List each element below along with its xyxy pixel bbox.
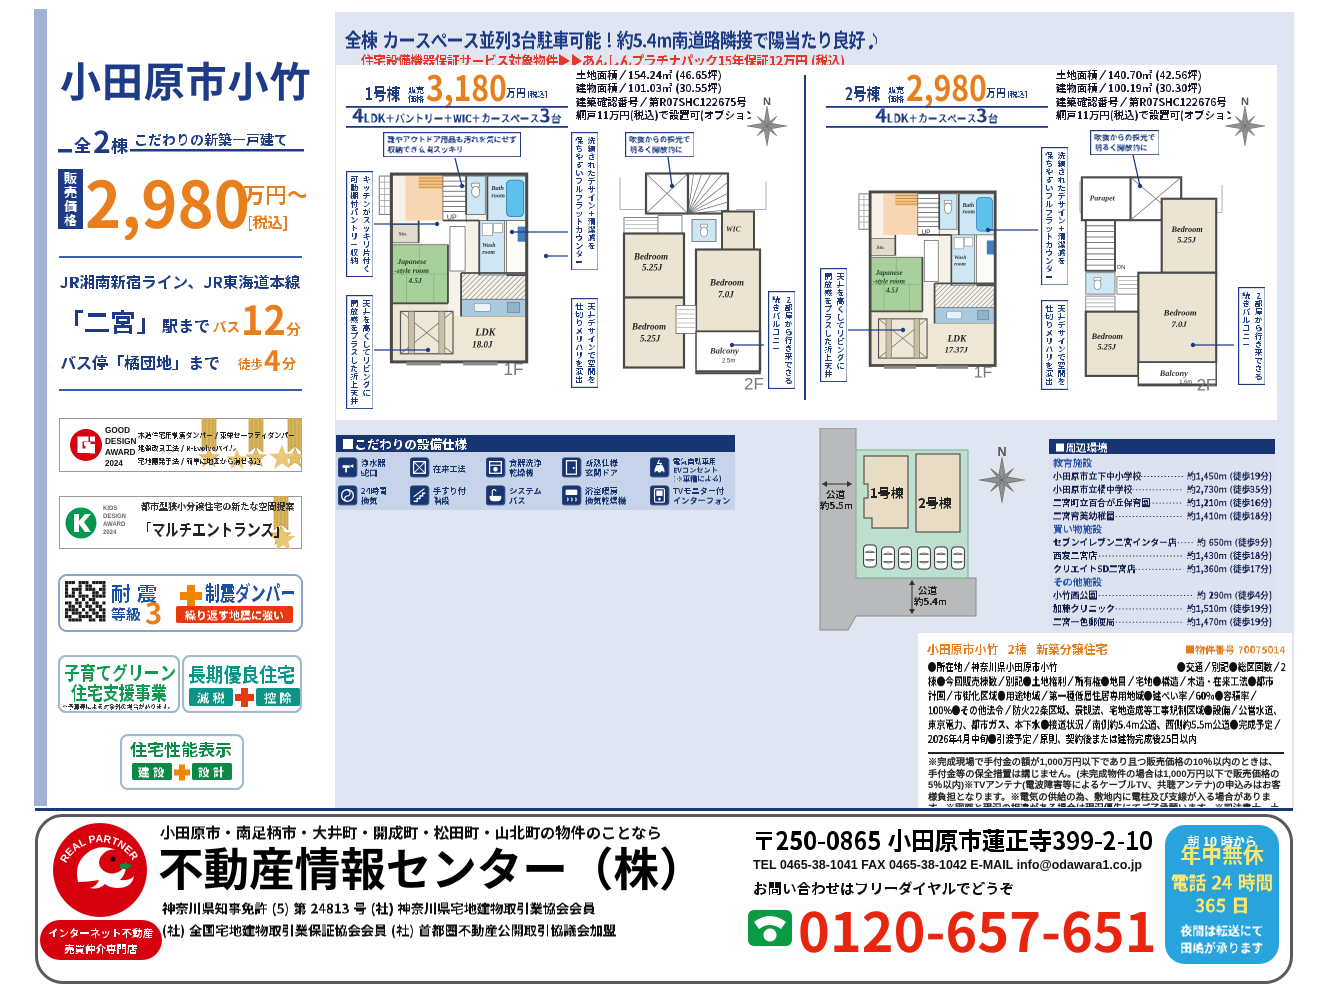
svg-text:7.0J: 7.0J [1171, 319, 1187, 329]
svg-text:room: room [954, 262, 966, 268]
svg-text:5.25J: 5.25J [1097, 343, 1116, 352]
svg-text:2F: 2F [744, 375, 764, 394]
svg-text:WIC: WIC [726, 225, 742, 234]
svg-text:1F: 1F [503, 359, 523, 375]
svg-text:Bath: Bath [490, 185, 504, 192]
svg-text:Balcony: Balcony [709, 346, 739, 356]
svg-text:2024: 2024 [103, 530, 117, 536]
svg-text:4.5J: 4.5J [408, 276, 422, 285]
svg-text:Wash: Wash [954, 255, 966, 261]
svg-text:DN: DN [1117, 265, 1125, 271]
svg-text:2024: 2024 [105, 459, 123, 468]
svg-text:18.0J: 18.0J [472, 340, 493, 350]
svg-text:Parapet: Parapet [1090, 194, 1116, 203]
svg-text:Bedroom: Bedroom [709, 278, 744, 288]
svg-text:17.37J: 17.37J [945, 345, 969, 354]
svg-text:AWARD: AWARD [103, 522, 126, 528]
svg-text:Japanese: Japanese [875, 269, 903, 277]
svg-text:GOOD: GOOD [105, 426, 130, 435]
svg-text:DESIGN: DESIGN [105, 437, 136, 446]
svg-text:LDK: LDK [474, 328, 496, 339]
svg-text:room: room [491, 192, 505, 199]
svg-text:Bedroom: Bedroom [633, 252, 668, 262]
svg-text:DESIGN: DESIGN [103, 514, 126, 520]
svg-text:Bath: Bath [962, 203, 975, 209]
svg-text:5.25J: 5.25J [640, 334, 661, 344]
svg-text:room: room [963, 209, 976, 215]
svg-text:Balcony: Balcony [1159, 369, 1188, 378]
svg-text:2.5m: 2.5m [722, 359, 735, 365]
svg-text:5.25J: 5.25J [1177, 236, 1196, 245]
svg-text:AWARD: AWARD [105, 448, 136, 457]
svg-text:Japanese: Japanese [396, 257, 427, 266]
svg-text:-style room: -style room [394, 266, 429, 275]
svg-text:Bedroom: Bedroom [1091, 332, 1124, 341]
svg-text:Sto.: Sto. [398, 232, 407, 238]
svg-text:room: room [482, 250, 495, 256]
svg-text:Bedroom: Bedroom [1170, 225, 1203, 234]
svg-text:Bedroom: Bedroom [1163, 308, 1197, 318]
svg-text:LDK: LDK [947, 334, 967, 344]
svg-text:4.5J: 4.5J [885, 287, 899, 295]
svg-text:1F: 1F [974, 365, 993, 382]
svg-text:1.6m: 1.6m [1179, 380, 1192, 386]
svg-text:Sto.: Sto. [877, 245, 885, 251]
svg-text:Bedroom: Bedroom [631, 322, 666, 332]
svg-text:KIDS: KIDS [103, 506, 117, 512]
svg-text:7.0J: 7.0J [718, 290, 734, 300]
svg-text:-style room: -style room [873, 277, 906, 285]
svg-text:Wash: Wash [482, 243, 495, 249]
svg-text:5.25J: 5.25J [642, 263, 663, 273]
svg-text:N: N [997, 445, 1006, 459]
svg-text:2F: 2F [1197, 376, 1216, 395]
